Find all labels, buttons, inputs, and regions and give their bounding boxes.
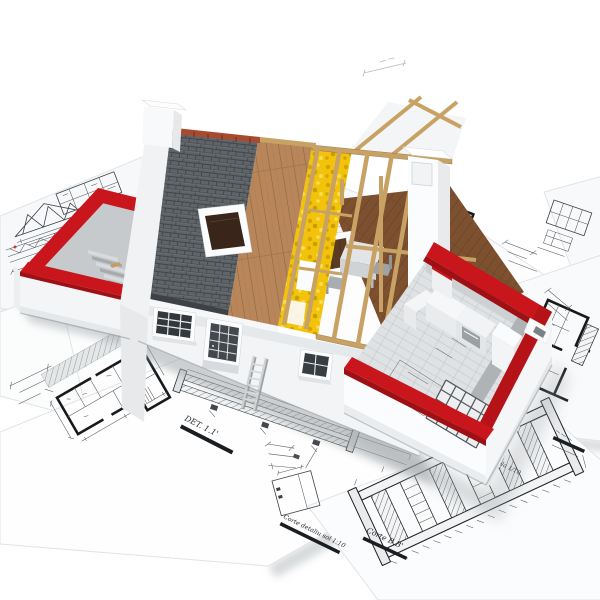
architectural-render: DET. 1.1' Corte detaliu sol 1:10 DET. C.… (0, 0, 600, 600)
render-canvas: DET. 1.1' Corte detaliu sol 1:10 DET. C.… (0, 0, 600, 600)
front-door (202, 318, 243, 374)
window-left (152, 307, 197, 346)
window-right (298, 349, 333, 385)
gable-wall-lower (120, 304, 148, 422)
red-plan-dot (14, 246, 17, 249)
skylight-window (198, 204, 252, 257)
left-wing-outer-wall (14, 266, 20, 312)
chimney-small (142, 100, 186, 152)
